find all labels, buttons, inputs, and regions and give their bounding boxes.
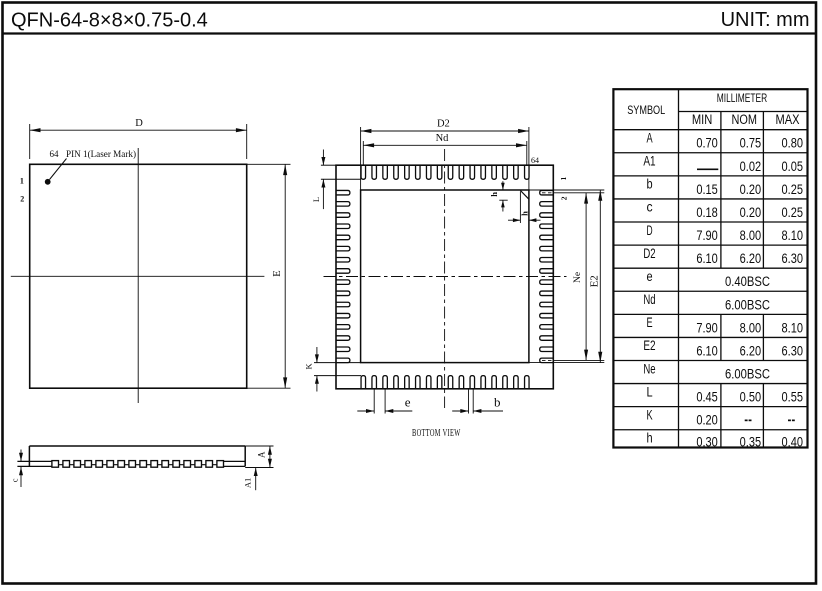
svg-text:0.20: 0.20	[740, 205, 761, 220]
svg-text:0.80: 0.80	[782, 136, 803, 151]
svg-text:1: 1	[20, 176, 24, 185]
svg-text:0.40BSC: 0.40BSC	[725, 274, 770, 289]
svg-text:c: c	[646, 200, 652, 215]
svg-text:0.55: 0.55	[782, 390, 803, 405]
svg-text:64: 64	[50, 149, 60, 159]
svg-text:Ne: Ne	[573, 272, 583, 283]
svg-text:Nd: Nd	[643, 292, 655, 307]
svg-text:6.00BSC: 6.00BSC	[725, 367, 770, 382]
svg-text:h: h	[520, 211, 530, 216]
svg-text:MAX: MAX	[776, 112, 800, 127]
svg-text:e: e	[405, 395, 411, 410]
svg-text:MILLIMETER: MILLIMETER	[717, 93, 768, 105]
svg-text:7.90: 7.90	[696, 320, 717, 335]
svg-text:0.18: 0.18	[696, 205, 717, 220]
svg-text:64: 64	[531, 156, 539, 165]
svg-text:6.30: 6.30	[782, 343, 803, 358]
svg-text:6.30: 6.30	[782, 251, 803, 266]
svg-text:2: 2	[20, 194, 24, 203]
svg-text:c: c	[10, 478, 20, 482]
svg-text:BOTTOM VIEW: BOTTOM VIEW	[412, 428, 461, 439]
svg-text:D: D	[646, 223, 652, 238]
svg-text:K: K	[646, 407, 652, 422]
svg-text:8.10: 8.10	[782, 320, 803, 335]
svg-text:MIN: MIN	[692, 112, 713, 127]
svg-text:0.20: 0.20	[696, 413, 717, 428]
svg-text:2: 2	[560, 196, 569, 200]
svg-text:b: b	[646, 177, 652, 192]
svg-text:0.05: 0.05	[782, 159, 803, 174]
svg-text:6.10: 6.10	[696, 251, 717, 266]
svg-text:0.25: 0.25	[782, 205, 803, 220]
svg-text:0.02: 0.02	[740, 159, 761, 174]
svg-text:0.25: 0.25	[782, 182, 803, 197]
svg-text:0.35: 0.35	[740, 434, 761, 449]
svg-text:D: D	[135, 118, 143, 129]
svg-text:E: E	[646, 315, 652, 330]
svg-text:A: A	[257, 451, 267, 458]
svg-text:8.00: 8.00	[740, 228, 761, 243]
svg-text:K: K	[304, 362, 314, 369]
svg-text:PIN 1(Laser Mark): PIN 1(Laser Mark)	[66, 149, 136, 160]
svg-text:8.00: 8.00	[740, 320, 761, 335]
svg-text:NOM: NOM	[731, 112, 757, 127]
svg-text:SYMBOL: SYMBOL	[627, 103, 665, 117]
svg-text:0.70: 0.70	[696, 136, 717, 151]
svg-text:b: b	[494, 395, 501, 410]
svg-text:h: h	[489, 192, 499, 197]
svg-text:6.20: 6.20	[740, 343, 761, 358]
svg-text:6.20: 6.20	[740, 251, 761, 266]
svg-text:D2: D2	[643, 246, 655, 261]
svg-text:6.10: 6.10	[696, 343, 717, 358]
svg-text:0.40: 0.40	[782, 434, 803, 449]
svg-text:A1: A1	[643, 154, 655, 169]
svg-text:QFN-64-8×8×0.75-0.4: QFN-64-8×8×0.75-0.4	[11, 10, 208, 32]
svg-text:0.15: 0.15	[696, 182, 717, 197]
svg-text:UNIT: mm: UNIT: mm	[721, 9, 810, 31]
svg-text:6.00BSC: 6.00BSC	[725, 297, 770, 312]
svg-text:L: L	[311, 197, 321, 202]
svg-text:D2: D2	[437, 118, 450, 129]
svg-text:0.75: 0.75	[740, 136, 761, 151]
svg-text:7.90: 7.90	[696, 228, 717, 243]
svg-text:Nd: Nd	[436, 133, 450, 144]
svg-text:0.20: 0.20	[740, 182, 761, 197]
svg-text:A: A	[646, 131, 652, 146]
svg-text:e: e	[646, 269, 652, 284]
svg-text:E2: E2	[589, 275, 601, 287]
svg-text:0.50: 0.50	[740, 390, 761, 405]
svg-text:Ne: Ne	[643, 361, 655, 376]
svg-text:A1: A1	[243, 478, 253, 488]
svg-text:L: L	[646, 384, 653, 399]
svg-text:8.10: 8.10	[782, 228, 803, 243]
svg-text:h: h	[646, 431, 652, 446]
svg-text:E: E	[272, 270, 283, 276]
svg-text:1: 1	[559, 176, 568, 180]
svg-text:0.45: 0.45	[696, 390, 717, 405]
svg-text:0.30: 0.30	[696, 434, 717, 449]
svg-text:E2: E2	[643, 338, 655, 353]
